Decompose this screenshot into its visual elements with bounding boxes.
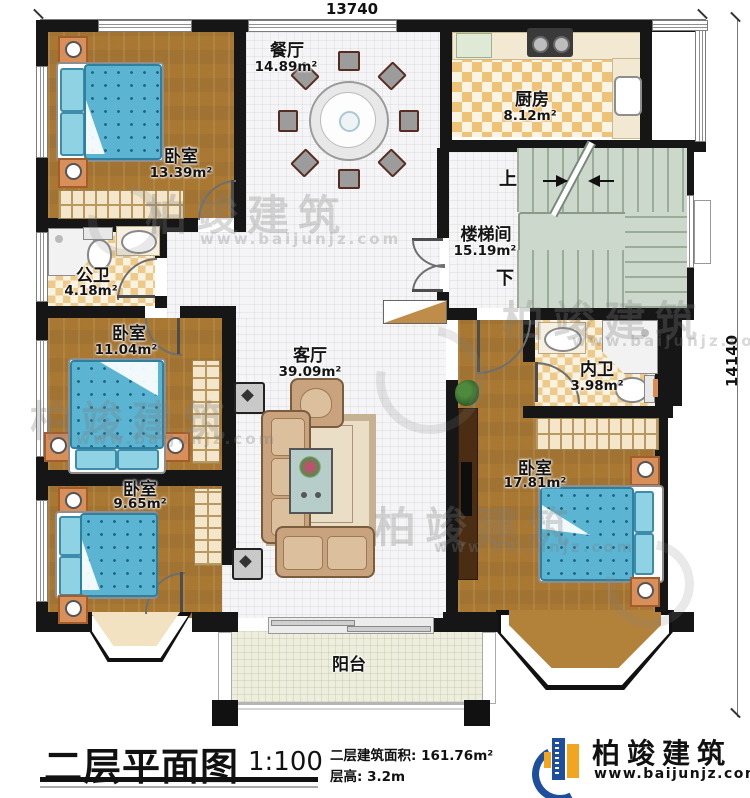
speaker xyxy=(234,382,265,414)
dining-table xyxy=(309,81,389,161)
bay-window-bedroom-bl xyxy=(78,612,192,662)
room-area: 3.98m² xyxy=(537,380,657,394)
pillow xyxy=(60,68,85,112)
dim-tick xyxy=(697,9,708,20)
balcony-front-rail2 xyxy=(226,708,484,710)
dining-chair xyxy=(399,110,419,132)
nightstand xyxy=(630,456,660,486)
title-underline-2 xyxy=(40,786,318,788)
room-label: 卧室 xyxy=(121,149,241,166)
wall xyxy=(36,306,145,318)
nightstand xyxy=(58,595,88,624)
brand-logo: 柏竣建筑 www.baijunjz.com xyxy=(530,728,740,790)
nightstand xyxy=(58,158,88,188)
pillow xyxy=(59,556,82,596)
room-area: 17.81m² xyxy=(475,477,595,491)
room-label: 厨房 xyxy=(472,92,592,109)
balcony-column-left xyxy=(212,700,238,726)
floor-area-value: 161.76m² xyxy=(421,748,493,764)
room-area: 4.18m² xyxy=(31,285,151,299)
dim-tick xyxy=(730,708,741,719)
balcony-sliding-door xyxy=(268,617,434,634)
stairs-arrowhead xyxy=(588,175,600,187)
title-underline xyxy=(40,777,318,782)
wall xyxy=(440,20,452,140)
room-area: 15.19m² xyxy=(425,245,545,259)
stairs-down-label: 下 xyxy=(445,270,565,288)
window xyxy=(36,500,48,602)
room-label: 阳台 xyxy=(289,657,409,674)
pillow xyxy=(117,449,159,470)
window xyxy=(695,30,706,142)
dimension-top: 13740 xyxy=(322,0,382,18)
window xyxy=(248,20,397,32)
room-label: 客厅 xyxy=(250,348,370,365)
room-area: 14.89m² xyxy=(226,61,346,75)
balcony-front-rail xyxy=(222,702,488,705)
room-label: 楼梯间 xyxy=(426,227,546,244)
dim-tick xyxy=(730,12,741,23)
wall xyxy=(523,406,673,418)
floor-height-value: 3.2m xyxy=(367,769,405,785)
room-area: 39.09m² xyxy=(250,366,370,380)
burner xyxy=(532,36,549,53)
drawing-scale: 1:100 xyxy=(248,747,323,777)
room-area: 8.12m² xyxy=(470,110,590,124)
floor-height-label: 层高: xyxy=(330,769,362,785)
floor-area-label: 二层建筑面积: xyxy=(330,748,416,764)
window xyxy=(36,66,48,158)
door-leaf xyxy=(180,572,183,612)
dimension-right: 14140 xyxy=(723,316,741,406)
window xyxy=(98,20,192,32)
wall xyxy=(192,612,238,632)
cutting-board xyxy=(456,33,492,58)
brand-url: www.baijunjz.com xyxy=(594,766,750,782)
pillow xyxy=(634,491,654,533)
page-title: 二层平面图 xyxy=(44,736,239,791)
stairs-up-label: 上 xyxy=(448,171,568,189)
watermark-url: www.baijunjz.com xyxy=(200,230,401,248)
stairs-under-wedge xyxy=(383,300,447,324)
sofa-bottom xyxy=(275,526,375,578)
watermark-url: www.baijunjz.com xyxy=(76,430,277,448)
balcony-column-right xyxy=(464,700,490,726)
room-area: 9.65m² xyxy=(80,498,200,512)
wall xyxy=(180,306,236,318)
kitchen-sink xyxy=(614,76,642,116)
balcony-side-left xyxy=(218,632,232,704)
room-area: 11.04m² xyxy=(66,344,186,358)
pillow xyxy=(75,449,117,470)
room-label: 内卫 xyxy=(537,362,657,379)
wall xyxy=(443,612,498,632)
floor-info: 二层建筑面积: 161.76m² xyxy=(330,744,493,764)
watermark-url: www.baijunjz.com xyxy=(572,332,750,350)
coffee-table xyxy=(289,448,333,514)
stove xyxy=(527,28,573,57)
pillow xyxy=(60,112,85,156)
floor-plan: 13740 14140 xyxy=(0,0,750,798)
room-label: 卧室 xyxy=(69,326,189,343)
stair-door-leaf xyxy=(412,289,443,292)
floor-height-info: 层高: 3.2m xyxy=(330,765,405,785)
brand-logo-icon xyxy=(530,732,588,790)
wardrobe xyxy=(535,418,659,450)
dim-tick xyxy=(33,9,44,20)
room-area: 13.39m² xyxy=(121,167,241,181)
balcony-side-right xyxy=(482,632,496,704)
wall xyxy=(437,148,449,238)
dining-chair xyxy=(278,110,298,132)
burner xyxy=(553,36,570,53)
speaker xyxy=(232,548,263,580)
watermark-url: www.baijunjz.com xyxy=(434,538,635,556)
wall xyxy=(445,308,477,320)
room-label: 餐厅 xyxy=(227,43,347,60)
window-sill xyxy=(694,200,711,264)
pillow xyxy=(59,516,82,556)
